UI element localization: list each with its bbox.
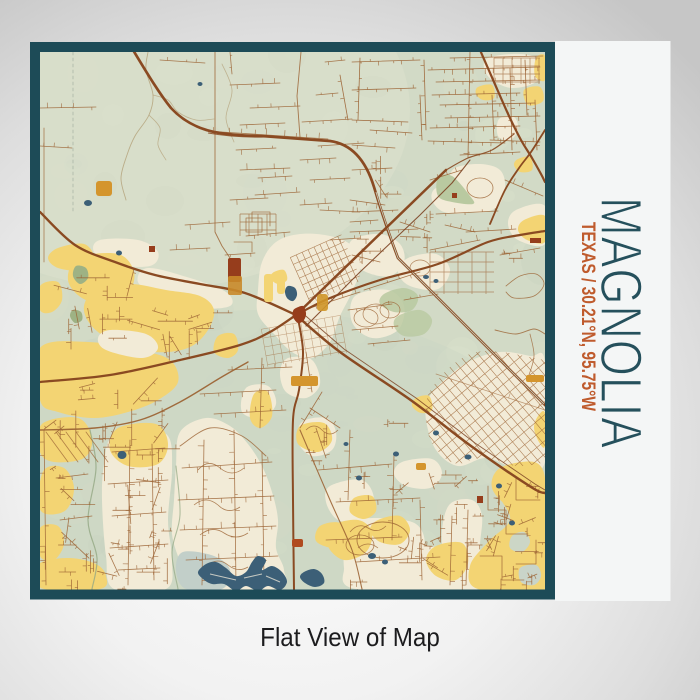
svg-text:TEXAS / 30.21°N, 95.75°W: TEXAS / 30.21°N, 95.75°W [577,222,598,411]
